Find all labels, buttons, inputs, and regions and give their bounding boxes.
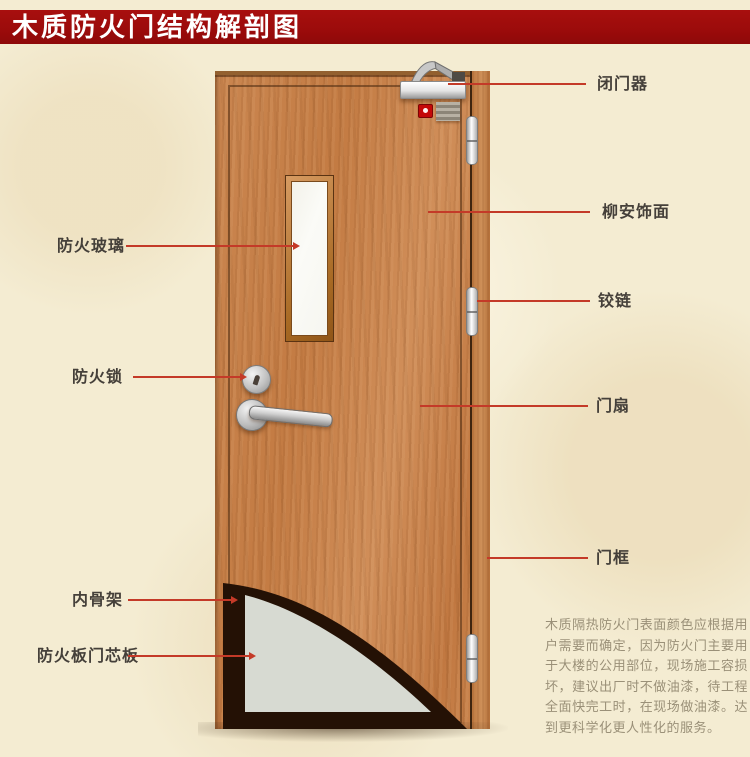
- leader-line-door-closer: [448, 83, 586, 85]
- hinge-bottom: [466, 634, 478, 683]
- hinge-top: [466, 116, 478, 165]
- label-fire-glass: 防火玻璃: [57, 238, 125, 255]
- leader-line-door-frame: [487, 557, 588, 559]
- leader-line-fire-lock: [133, 376, 241, 378]
- label-door-leaf: 门扇: [596, 398, 630, 415]
- leader-line-veneer: [428, 211, 590, 213]
- keyhole: [253, 374, 261, 385]
- door-vision-window: [285, 175, 334, 342]
- label-door-frame: 门框: [596, 550, 630, 567]
- leader-line-fire-glass: [126, 245, 294, 247]
- page-title: 木质防火门结构解剖图: [0, 10, 302, 44]
- core-board-shape: [245, 595, 431, 712]
- closer-mount-plate: [436, 102, 460, 121]
- label-veneer: 柳安饰面: [602, 204, 670, 221]
- label-hinge: 铰链: [598, 293, 632, 310]
- label-core-board: 防火板门芯板: [37, 648, 139, 665]
- alarm-indicator-light: [418, 104, 433, 118]
- leader-line-inner-skeleton: [128, 599, 232, 601]
- fire-door-illustration: [215, 71, 490, 729]
- leader-line-core-board: [128, 655, 250, 657]
- label-door-closer: 闭门器: [597, 76, 648, 93]
- title-banner: 木质防火门结构解剖图: [0, 10, 750, 44]
- product-description: 木质隔热防火门表面颜色应根据用户需要而确定，因为防火门主要用于大楼的公用部位，现…: [545, 615, 748, 738]
- label-inner-skeleton: 内骨架: [72, 592, 123, 609]
- leader-line-door-leaf: [420, 405, 588, 407]
- label-fire-lock: 防火锁: [72, 369, 123, 386]
- hinge-middle: [466, 287, 478, 336]
- leader-line-hinge: [477, 300, 590, 302]
- diagram-canvas: 木质防火门结构解剖图 防火玻璃 防火锁: [0, 0, 750, 757]
- fire-glass-pane: [291, 181, 328, 336]
- door-frame-strip: [470, 71, 490, 729]
